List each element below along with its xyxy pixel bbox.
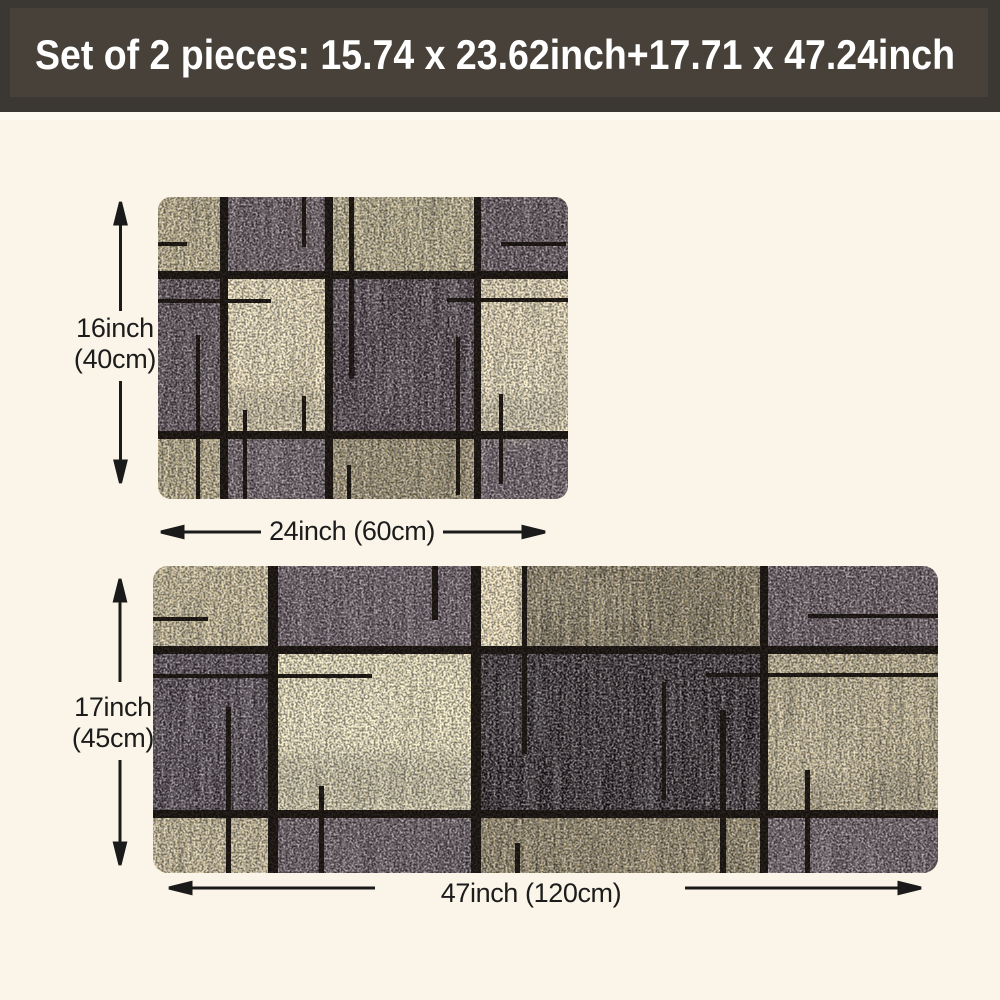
svg-text:(45cm): (45cm) <box>72 723 154 753</box>
svg-text:Set of 2 pieces: 15.74 x 23.62: Set of 2 pieces: 15.74 x 23.62inch+17.71… <box>35 31 955 78</box>
svg-text:24inch (60cm): 24inch (60cm) <box>269 516 435 546</box>
svg-text:47inch (120cm): 47inch (120cm) <box>441 878 622 908</box>
svg-text:17inch: 17inch <box>74 692 152 722</box>
svg-text:16inch: 16inch <box>76 313 154 343</box>
svg-text:(40cm): (40cm) <box>74 344 156 374</box>
